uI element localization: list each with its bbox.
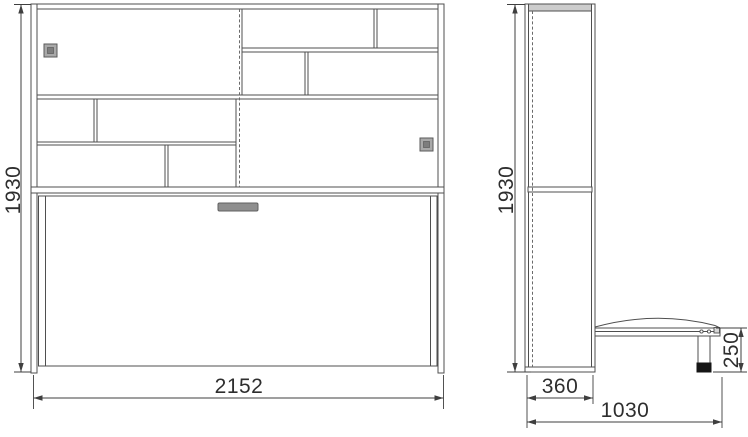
shelf-row3-left — [37, 142, 236, 145]
cabinet-top-panel — [31, 4, 444, 9]
mattress-curve — [595, 318, 715, 327]
bed-height-label: 250 — [720, 332, 743, 369]
dimension-side-depth: 360 — [527, 375, 593, 428]
hutch-middle-shelf — [37, 95, 438, 99]
bed-depth-label: 1030 — [601, 399, 650, 422]
dimension-front-height: 1930 — [2, 5, 31, 373]
divider-row4 — [165, 145, 168, 187]
front-view — [31, 4, 444, 373]
bed-panel-face — [39, 196, 438, 366]
side-bottom-panel — [525, 367, 595, 372]
sliding-door-top-left — [37, 9, 242, 95]
bed-unfolded-profile — [595, 318, 720, 372]
technical-drawing-canvas: 1930 2152 1930 — [0, 0, 748, 437]
side-height-label: 1930 — [495, 166, 518, 215]
divider-row3 — [94, 99, 97, 142]
dimension-front-width: 2152 — [34, 375, 444, 409]
front-height-label: 1930 — [2, 166, 25, 215]
side-view — [525, 4, 720, 372]
sliding-door-bottom-right — [236, 99, 438, 187]
bed-pull-handle-icon — [218, 203, 258, 211]
side-depth-label: 360 — [542, 375, 579, 398]
bed-front-panel — [39, 196, 438, 366]
side-top-panel — [525, 4, 595, 11]
hinge-pin-icon — [707, 330, 710, 333]
side-middle-shelf — [528, 187, 592, 192]
hutch-bottom-shelf — [31, 187, 444, 193]
sliding-door-panel — [236, 99, 438, 187]
sliding-door-panel — [37, 9, 242, 95]
bed-leg — [698, 336, 710, 364]
door-handle-inner-icon — [48, 48, 54, 54]
shelf-row1-right — [242, 48, 438, 52]
technical-drawing: 1930 2152 1930 — [0, 0, 748, 437]
front-width-label: 2152 — [215, 375, 264, 398]
bed-leg-foot — [697, 363, 711, 372]
hinge-pin-icon — [700, 330, 703, 333]
door-handle-inner-icon — [424, 142, 430, 148]
divider-row1 — [374, 9, 377, 48]
divider-row2 — [305, 52, 308, 95]
